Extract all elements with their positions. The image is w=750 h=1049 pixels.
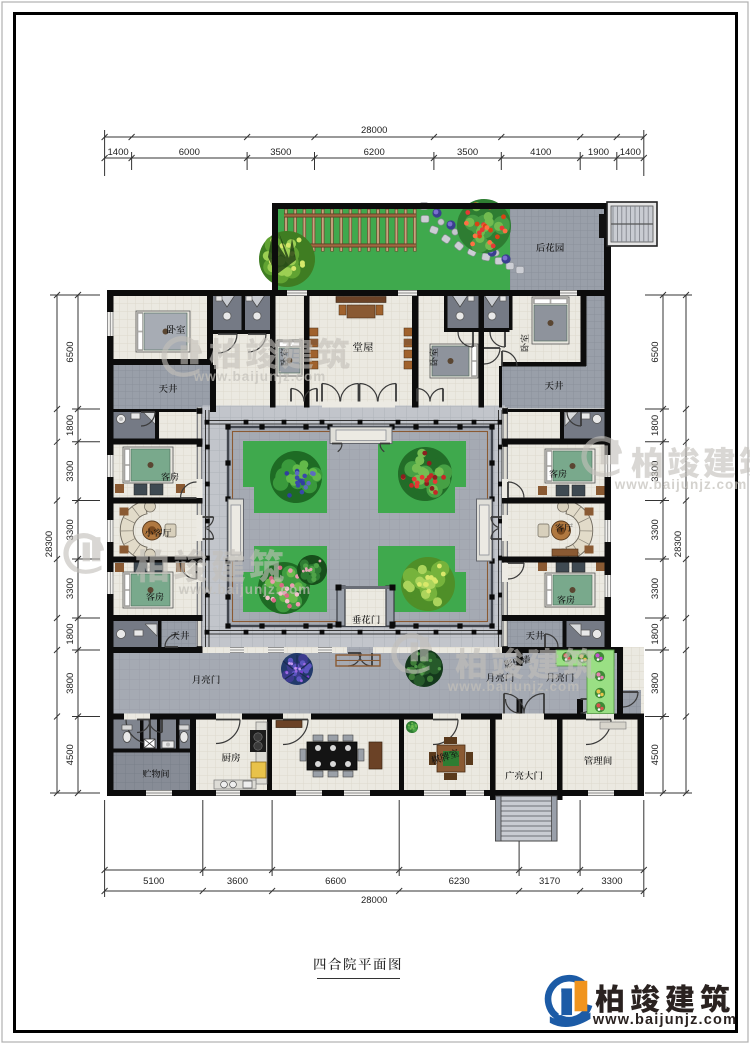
svg-text:3500: 3500 (270, 147, 291, 158)
svg-text:www.baijunjz.com: www.baijunjz.com (447, 679, 581, 694)
svg-text:28300: 28300 (44, 531, 55, 557)
svg-text:3300: 3300 (650, 519, 661, 540)
svg-text:1400: 1400 (620, 147, 641, 158)
svg-text:1900: 1900 (588, 147, 609, 158)
svg-text:1800: 1800 (65, 623, 76, 644)
svg-text:3800: 3800 (65, 673, 76, 694)
svg-text:4100: 4100 (530, 147, 551, 158)
svg-text:1800: 1800 (65, 415, 76, 436)
svg-text:3800: 3800 (650, 673, 661, 694)
svg-text:6600: 6600 (325, 876, 346, 887)
svg-text:1800: 1800 (650, 623, 661, 644)
svg-text:28000: 28000 (361, 895, 387, 906)
svg-text:3170: 3170 (539, 876, 560, 887)
svg-text:4500: 4500 (650, 744, 661, 765)
svg-text:3600: 3600 (227, 876, 248, 887)
svg-text:3300: 3300 (65, 461, 76, 482)
svg-text:3300: 3300 (650, 578, 661, 599)
svg-text:28300: 28300 (673, 531, 684, 557)
svg-text:6000: 6000 (179, 147, 200, 158)
svg-text:3500: 3500 (457, 147, 478, 158)
svg-text:6500: 6500 (65, 341, 76, 362)
svg-text:3300: 3300 (601, 876, 622, 887)
svg-text:www.baijunjz.com: www.baijunjz.com (178, 582, 312, 597)
svg-text:www.baijunjz.com: www.baijunjz.com (614, 477, 748, 492)
svg-text:6230: 6230 (449, 876, 470, 887)
svg-text:5100: 5100 (143, 876, 164, 887)
svg-text:6200: 6200 (364, 147, 385, 158)
svg-text:28000: 28000 (361, 125, 387, 136)
svg-text:www.baijunjz.com: www.baijunjz.com (592, 1012, 737, 1028)
svg-text:www.baijunjz.com: www.baijunjz.com (193, 369, 327, 384)
svg-text:1800: 1800 (650, 415, 661, 436)
svg-text:4500: 4500 (65, 744, 76, 765)
svg-text:3300: 3300 (65, 578, 76, 599)
svg-text:6500: 6500 (650, 341, 661, 362)
svg-text:1400: 1400 (108, 147, 129, 158)
